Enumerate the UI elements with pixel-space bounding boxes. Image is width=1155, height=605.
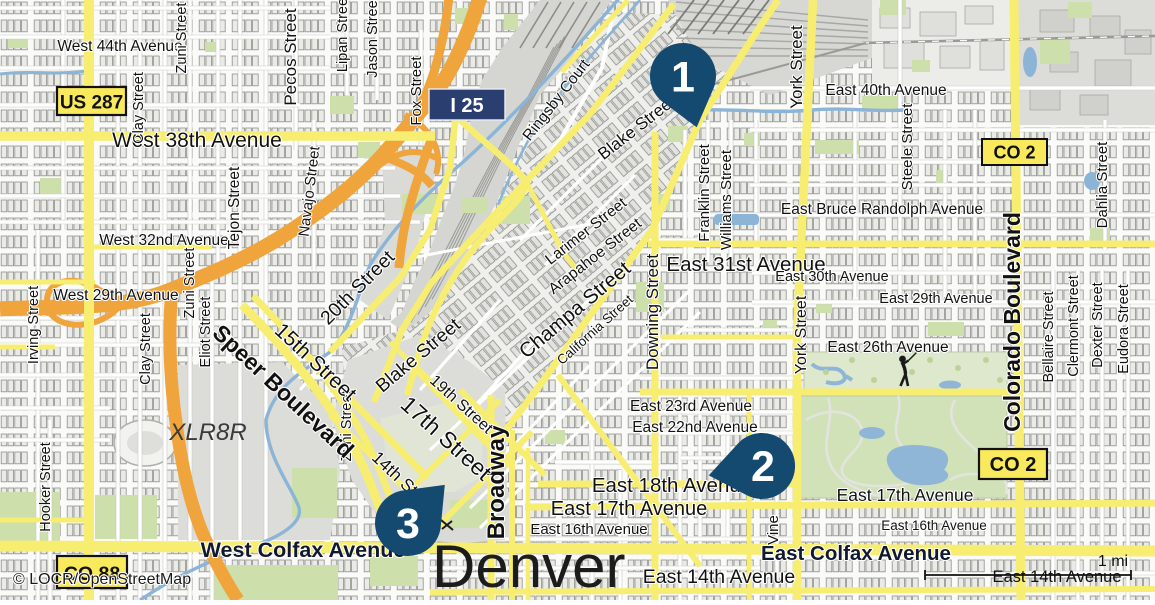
svg-text:East 26th Avenue: East 26th Avenue xyxy=(827,339,948,356)
svg-text:Williams Street: Williams Street xyxy=(718,149,735,250)
svg-text:Denver: Denver xyxy=(432,533,625,600)
svg-text:Jason Street: Jason Street xyxy=(365,0,381,78)
svg-text:West Colfax Avenue: West Colfax Avenue xyxy=(201,538,406,562)
svg-text:Bellaire Street: Bellaire Street xyxy=(1041,291,1057,382)
svg-text:US 287: US 287 xyxy=(60,93,123,114)
svg-text:Clay Street: Clay Street xyxy=(131,72,147,144)
svg-text:York Street: York Street xyxy=(787,25,806,109)
svg-text:East 17th Avenue: East 17th Avenue xyxy=(551,498,707,520)
svg-text:East 30th Avenue: East 30th Avenue xyxy=(775,269,888,285)
svg-text:Tejon Street: Tejon Street xyxy=(226,166,243,249)
svg-text:Colorado Boulevard: Colorado Boulevard xyxy=(999,212,1025,432)
svg-text:Pecos Street: Pecos Street xyxy=(281,8,300,106)
svg-text:CO 2: CO 2 xyxy=(993,143,1035,163)
svg-text:Dexter Street: Dexter Street xyxy=(1090,282,1106,367)
svg-text:Fox Street: Fox Street xyxy=(408,56,425,126)
svg-text:Franklin Street: Franklin Street xyxy=(696,143,713,241)
svg-text:Zuni Street: Zuni Street xyxy=(182,248,198,319)
svg-text:Broadway: Broadway xyxy=(483,424,510,539)
svg-text:1: 1 xyxy=(671,54,695,102)
svg-text:East 29th Avenue: East 29th Avenue xyxy=(879,291,992,307)
svg-text:XLR8R: XLR8R xyxy=(168,419,246,446)
svg-text:Steele Street: Steele Street xyxy=(899,103,916,191)
svg-text:West 29th Avenue: West 29th Avenue xyxy=(53,287,178,304)
svg-text:East 16th Avenue: East 16th Avenue xyxy=(881,518,987,533)
svg-text:Eudora Street: Eudora Street xyxy=(1116,284,1132,373)
svg-text:East 14th Avenue: East 14th Avenue xyxy=(992,568,1121,586)
svg-text:Clermont Street: Clermont Street xyxy=(1066,275,1082,377)
svg-text:East 14th Avenue: East 14th Avenue xyxy=(643,566,796,588)
svg-text:West 44th Avenue: West 44th Avenue xyxy=(57,38,182,55)
svg-text:Hooker Street: Hooker Street xyxy=(38,442,54,531)
svg-text:© LOCR/OpenStreetMap: © LOCR/OpenStreetMap xyxy=(13,571,191,588)
svg-text:Downing Street: Downing Street xyxy=(643,254,662,371)
svg-text:Zuni Street: Zuni Street xyxy=(174,3,190,74)
svg-text:Dahlia Street: Dahlia Street xyxy=(1094,141,1111,229)
svg-text:East 40th Avenue: East 40th Avenue xyxy=(825,82,946,99)
svg-text:Vine: Vine xyxy=(765,515,782,545)
svg-text:Irving Street: Irving Street xyxy=(26,286,42,364)
svg-text:York Street: York Street xyxy=(793,295,810,374)
svg-text:I 25: I 25 xyxy=(450,95,483,117)
svg-text:Clay Street: Clay Street xyxy=(138,313,154,385)
svg-text:Eliot Street: Eliot Street xyxy=(198,297,214,368)
svg-text:Lipan Street: Lipan Street xyxy=(335,0,351,72)
svg-text:East Colfax Avenue: East Colfax Avenue xyxy=(761,542,951,565)
svg-text:CO 2: CO 2 xyxy=(990,454,1037,476)
svg-text:East Bruce Randolph Avenue: East Bruce Randolph Avenue xyxy=(781,201,983,218)
svg-text:East 17th Avenue: East 17th Avenue xyxy=(837,485,974,505)
svg-text:3: 3 xyxy=(396,500,420,548)
svg-text:East 23rd Avenue: East 23rd Avenue xyxy=(630,398,752,415)
svg-text:1 mi: 1 mi xyxy=(1098,553,1128,570)
svg-text:East 22nd Avenue: East 22nd Avenue xyxy=(632,419,758,436)
svg-text:West 32nd Avenue: West 32nd Avenue xyxy=(99,232,229,249)
svg-text:2: 2 xyxy=(751,443,775,491)
